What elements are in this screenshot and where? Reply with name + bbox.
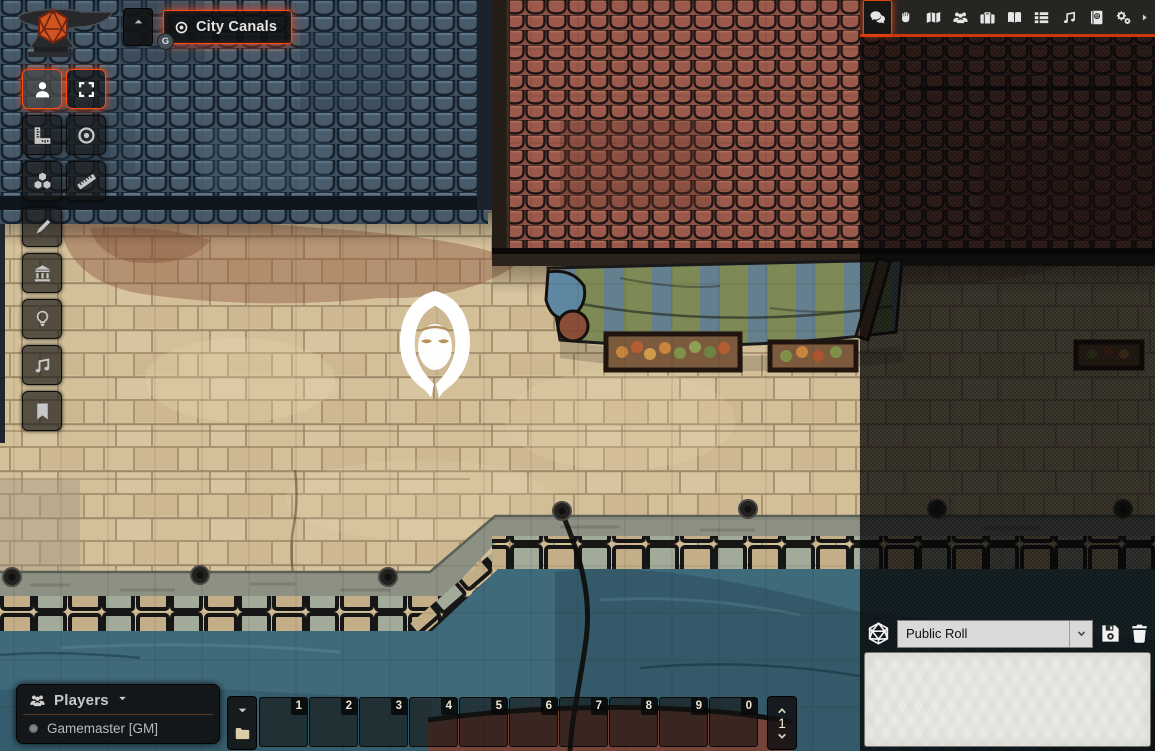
tab-chat[interactable] <box>863 0 892 35</box>
slot-number: 5 <box>491 698 507 715</box>
control-measure-templates[interactable] <box>22 115 62 155</box>
save-icon[interactable] <box>1099 622 1122 645</box>
university-icon <box>32 263 53 284</box>
sidebar: Public Roll <box>860 0 1155 751</box>
tab-journal[interactable] <box>1001 1 1028 34</box>
chat-input[interactable] <box>864 652 1151 747</box>
hotbar-collapse-button[interactable] <box>236 704 249 717</box>
cubes-icon <box>32 171 53 192</box>
players-header[interactable]: Players <box>17 685 219 714</box>
macro-slot-9[interactable]: 9 <box>659 697 708 747</box>
tab-compendium[interactable] <box>1083 1 1110 34</box>
tab-settings[interactable] <box>1110 1 1137 34</box>
control-notes[interactable] <box>22 391 62 431</box>
tool-measure-distance[interactable] <box>66 161 106 201</box>
atlas-icon <box>1088 9 1105 26</box>
list-icon <box>1033 9 1050 26</box>
control-drawings[interactable] <box>22 207 62 247</box>
slot-number: 4 <box>441 698 457 715</box>
chevron-down-icon <box>775 730 789 742</box>
bookmark-icon <box>32 401 53 422</box>
tab-actors[interactable] <box>947 1 974 34</box>
gm-badge: G <box>157 33 174 50</box>
scene-nav-tab-active[interactable]: City Canals G <box>163 10 292 44</box>
slot-number: 6 <box>541 698 557 715</box>
slot-number: 2 <box>341 698 357 715</box>
player-name: Gamemaster [GM] <box>47 721 158 736</box>
control-token[interactable] <box>22 69 62 109</box>
scene-nav-collapse-button[interactable] <box>123 8 153 46</box>
tab-combat[interactable] <box>892 1 919 34</box>
tab-items[interactable] <box>974 1 1001 34</box>
caret-down-icon <box>236 704 249 717</box>
trash-icon[interactable] <box>1128 622 1151 645</box>
slot-number: 7 <box>591 698 607 715</box>
comments-icon <box>869 9 886 26</box>
control-lighting[interactable] <box>22 299 62 339</box>
music-icon <box>1061 9 1078 26</box>
slot-number: 8 <box>641 698 657 715</box>
macro-slot-0[interactable]: 0 <box>709 697 758 747</box>
d20-logo-icon <box>39 10 67 43</box>
suitcase-icon <box>979 9 996 26</box>
tab-playlists[interactable] <box>1055 1 1082 34</box>
caret-up-icon <box>132 15 145 28</box>
hotbar-page-control: 1 <box>767 696 797 750</box>
fist-icon <box>897 9 914 26</box>
macro-slot-3[interactable]: 3 <box>359 697 408 747</box>
macro-hotbar: 1 2 3 4 5 6 7 8 9 0 <box>259 697 758 747</box>
book-open-icon <box>1006 9 1023 26</box>
hotbar-page-number: 1 <box>778 717 786 730</box>
macro-slot-7[interactable]: 7 <box>559 697 608 747</box>
macro-slot-6[interactable]: 6 <box>509 697 558 747</box>
users-icon <box>29 692 46 709</box>
sidebar-tabs <box>860 0 1155 37</box>
expand-icon <box>76 79 97 100</box>
map-icon <box>925 9 942 26</box>
sidebar-collapse-button[interactable] <box>1137 12 1152 23</box>
slot-number: 3 <box>391 698 407 715</box>
hotbar-controls <box>227 696 257 750</box>
caret-down-icon <box>117 691 128 709</box>
slot-number: 9 <box>691 698 707 715</box>
foundry-logo[interactable] <box>6 1 116 59</box>
folder-icon <box>234 725 251 742</box>
macro-slot-2[interactable]: 2 <box>309 697 358 747</box>
players-title: Players <box>54 692 109 709</box>
slot-number: 0 <box>741 698 757 715</box>
chevron-up-icon <box>775 705 789 717</box>
player-status-dot <box>29 724 38 733</box>
control-sounds[interactable] <box>22 345 62 385</box>
roll-type-select[interactable]: Public Roll <box>897 620 1093 648</box>
ruler-icon <box>76 171 97 192</box>
tab-scenes[interactable] <box>919 1 946 34</box>
d20-dice-icon[interactable] <box>866 621 891 646</box>
caret-right-icon <box>1139 12 1150 23</box>
ruler-combined-icon <box>32 125 53 146</box>
control-tiles[interactable] <box>22 161 62 201</box>
bullseye-icon <box>174 20 189 35</box>
macro-slot-8[interactable]: 8 <box>609 697 658 747</box>
lightbulb-icon <box>32 309 53 330</box>
page-down-button[interactable] <box>775 730 789 742</box>
control-walls[interactable] <box>22 253 62 293</box>
tab-tables[interactable] <box>1028 1 1055 34</box>
macro-slot-5[interactable]: 5 <box>459 697 508 747</box>
foundry-vtt-window: Public Roll City Canals G <box>0 0 1155 751</box>
roll-type-value: Public Roll <box>898 626 1069 641</box>
tool-select-tokens[interactable] <box>66 69 106 109</box>
chevron-down-icon <box>1069 621 1092 647</box>
macro-slot-1[interactable]: 1 <box>259 697 308 747</box>
cogs-icon <box>1115 9 1132 26</box>
tool-target-token[interactable] <box>66 115 106 155</box>
slot-number: 1 <box>291 698 307 715</box>
chat-controls: Public Roll <box>860 617 1155 650</box>
user-icon <box>32 79 53 100</box>
scene-name: City Canals <box>196 19 277 35</box>
users-icon <box>952 9 969 26</box>
page-up-button[interactable] <box>775 705 789 717</box>
music-icon <box>32 355 53 376</box>
players-panel: Players Gamemaster [GM] <box>16 684 220 744</box>
macro-directory-button[interactable] <box>234 725 251 742</box>
player-row[interactable]: Gamemaster [GM] <box>17 715 219 743</box>
bullseye-icon <box>76 125 97 146</box>
macro-slot-4[interactable]: 4 <box>409 697 458 747</box>
pencil-icon <box>32 217 53 238</box>
